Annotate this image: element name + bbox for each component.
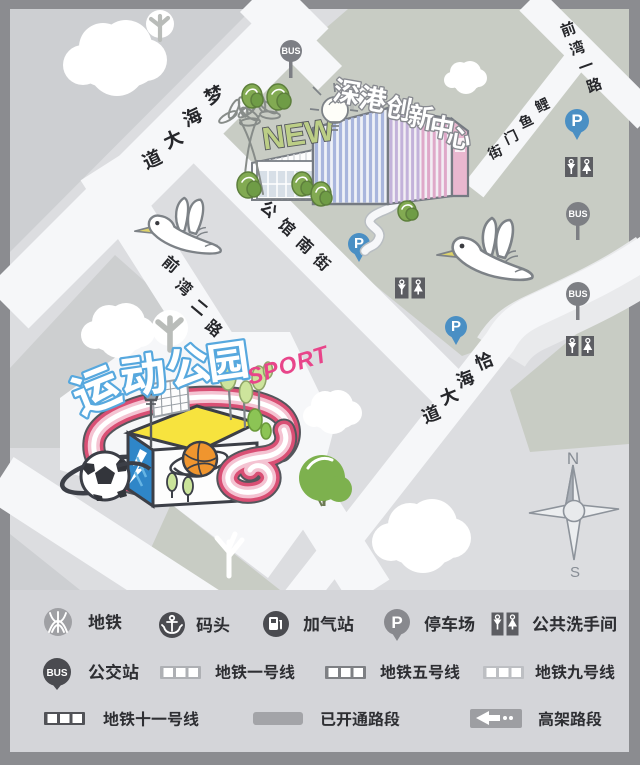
svg-text:BUS: BUS	[568, 209, 587, 219]
svg-text:P: P	[451, 318, 461, 335]
svg-text:P: P	[391, 613, 402, 632]
svg-text:BUS: BUS	[46, 668, 67, 679]
svg-text:BUS: BUS	[568, 289, 587, 299]
svg-text:BUS: BUS	[281, 46, 300, 56]
svg-text:N: N	[567, 449, 579, 468]
svg-text:S: S	[570, 564, 580, 581]
svg-text:P: P	[571, 111, 582, 130]
